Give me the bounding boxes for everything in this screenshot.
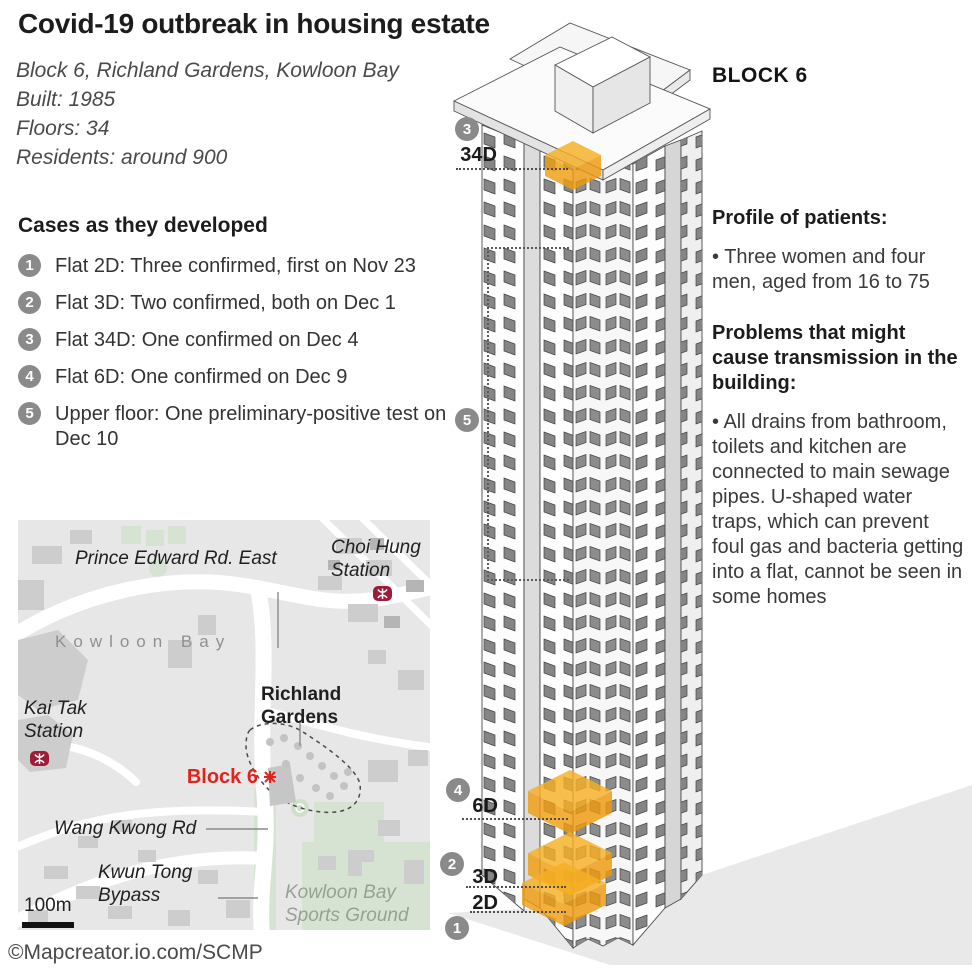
map-label-choi-hung: Choi Hung Station [331, 536, 421, 582]
case-text: Upper floor: One preliminary-positive te… [55, 403, 446, 450]
marker-5: 5 [455, 408, 479, 432]
floor-label-6d: 6D [448, 795, 498, 818]
case-number-badge: 5 [18, 402, 41, 425]
leader-2d [470, 911, 566, 913]
case-item-5: 5 Upper floor: One preliminary-positive … [18, 402, 454, 452]
case-item-1: 1 Flat 2D: Three confirmed, first on Nov… [18, 254, 454, 279]
infographic-page: { "header": { "title": "Covid-19 outbrea… [0, 0, 972, 977]
upper-floors-bracket [487, 247, 569, 581]
marker-3: 3 [455, 117, 479, 141]
mtr-icon-choi-hung [373, 586, 392, 601]
case-number-badge: 3 [18, 328, 41, 351]
case-text: Flat 34D: One confirmed on Dec 4 [55, 329, 358, 351]
problems-bullet: • All drains from bathroom, toilets and … [712, 410, 966, 610]
case-number-badge: 4 [18, 365, 41, 388]
mtr-icon-kai-tak [30, 751, 49, 766]
case-number-badge: 2 [18, 291, 41, 314]
map-label-sports-ground: Kowloon Bay Sports Ground [285, 881, 409, 927]
cases-section: Cases as they developed 1 Flat 2D: Three… [18, 214, 454, 464]
map-label-block6: Block 6 [178, 766, 258, 789]
map-label-kowloon-bay: Kowloon Bay [55, 630, 231, 653]
case-item-2: 2 Flat 3D: Two confirmed, both on Dec 1 [18, 291, 454, 316]
map-label-kai-tak: Kai Tak Station [24, 697, 87, 743]
case-text: Flat 6D: One confirmed on Dec 9 [55, 366, 347, 388]
problems-heading: Problems that might cause transmission i… [712, 321, 966, 396]
map-scale-bar [22, 922, 74, 928]
leader-6d [462, 818, 568, 820]
credit-line: ©Mapcreator.io.com/SCMP [8, 941, 263, 965]
building-name-label: BLOCK 6 [712, 64, 808, 88]
patients-bullet: • Three women and four men, aged from 16… [712, 245, 966, 295]
building-info-lines: Block 6, Richland Gardens, Kowloon Bay B… [16, 56, 399, 172]
map-scale-label: 100m [24, 894, 72, 917]
marker-1: 1 [445, 916, 469, 940]
page-title: Covid-19 outbreak in housing estate [18, 8, 490, 40]
map-label-kwun-tong: Kwun Tong Bypass [98, 861, 192, 907]
block6-marker-icon [264, 771, 276, 783]
floor-label-34d: 34D [450, 144, 497, 167]
cases-heading: Cases as they developed [18, 214, 454, 238]
leader-34d [456, 168, 568, 170]
map-label-wang-kwong: Wang Kwong Rd [54, 817, 196, 840]
patients-heading: Profile of patients: [712, 206, 966, 231]
case-item-4: 4 Flat 6D: One confirmed on Dec 9 [18, 365, 454, 390]
map-label-richland: Richland Gardens [261, 683, 341, 729]
case-number-badge: 1 [18, 254, 41, 277]
case-item-3: 3 Flat 34D: One confirmed on Dec 4 [18, 328, 454, 353]
side-text-column: Profile of patients: • Three women and f… [712, 206, 966, 610]
leader-3d [466, 886, 566, 888]
case-text: Flat 3D: Two confirmed, both on Dec 1 [55, 292, 396, 314]
case-text: Flat 2D: Three confirmed, first on Nov 2… [55, 255, 416, 277]
map-label-prince-edward: Prince Edward Rd. East [75, 547, 277, 570]
